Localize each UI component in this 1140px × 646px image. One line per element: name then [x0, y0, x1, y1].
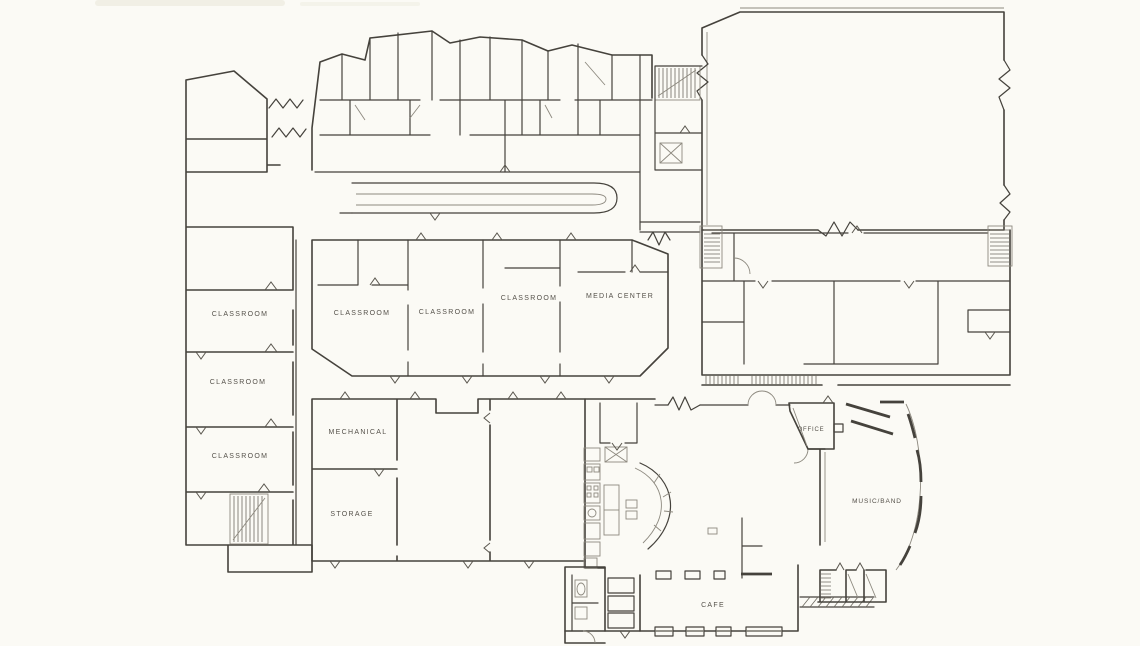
east-middle-block — [700, 226, 1012, 385]
room-label-classroom-mid-1: CLASSROOM — [334, 310, 390, 317]
gymnasium — [640, 8, 1010, 236]
room-label-classroom-west-3: CLASSROOM — [212, 453, 268, 460]
room-label-storage: STORAGE — [330, 511, 373, 518]
room-label-mechanical: MECHANICAL — [329, 429, 388, 436]
room-label-media-center: MEDIA CENTER — [586, 293, 654, 300]
north-room-complex — [312, 31, 652, 230]
room-label-cafe: CAFE — [701, 602, 725, 609]
room-label-music-band: MUSIC/BAND — [852, 498, 902, 505]
room-label-classroom-mid-2: CLASSROOM — [419, 309, 475, 316]
kitchen-serving-area — [584, 399, 673, 568]
kitchen-equipment — [584, 448, 637, 568]
west-classroom-wing — [186, 71, 312, 572]
scanned-floor-plan-page: CLASSROOM CLASSROOM CLASSROOM CLASSROOM … — [0, 0, 1140, 646]
floor-plan-drawing: CLASSROOM CLASSROOM CLASSROOM CLASSROOM … — [0, 0, 1140, 646]
room-label-office: OFFICE — [798, 427, 825, 433]
room-label-classroom-west-2: CLASSROOM — [210, 379, 266, 386]
serving-counter — [635, 463, 673, 549]
mechanical-storage-block — [312, 399, 585, 561]
room-label-classroom-mid-3: CLASSROOM — [501, 295, 557, 302]
room-label-classroom-west-1: CLASSROOM — [212, 311, 268, 318]
middle-classroom-block — [312, 232, 670, 376]
